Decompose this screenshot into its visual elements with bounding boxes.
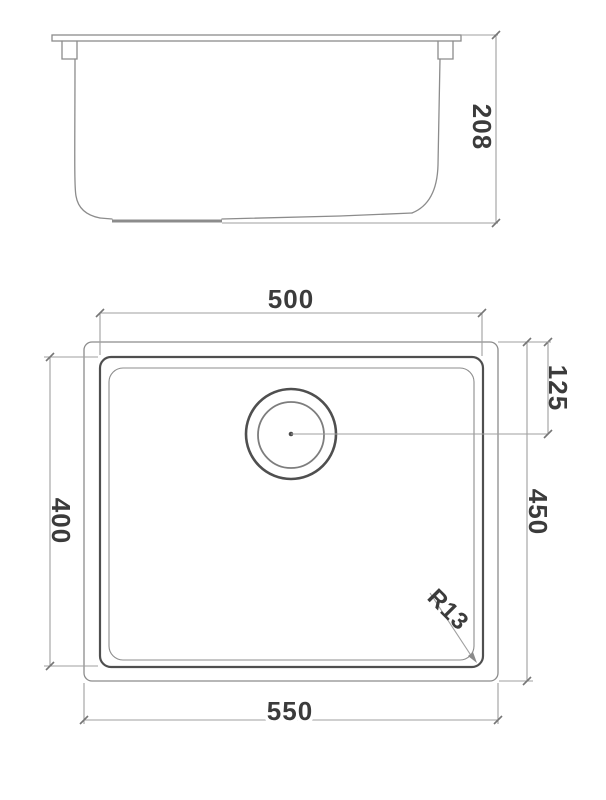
sink-side-outline — [52, 35, 461, 221]
dimension-overall-width: 550 — [80, 683, 502, 726]
bottom-slope — [222, 213, 412, 219]
outer-edge — [84, 342, 498, 681]
right-wall — [412, 59, 440, 213]
plan-view: 500 125 400 450 — [44, 284, 573, 726]
right-mounting-clip — [438, 41, 453, 59]
bottom-edge — [100, 218, 112, 219]
bowl-bottom-edge — [109, 368, 474, 660]
dimension-label-inner-depth: 400 — [46, 498, 76, 544]
corner-radius-callout: R13 — [422, 584, 477, 663]
dimension-height: 208 — [222, 31, 500, 227]
dimension-label-height: 208 — [467, 104, 497, 150]
dimension-label-corner-radius: R13 — [422, 584, 474, 636]
left-mounting-clip — [62, 41, 77, 59]
sink-technical-drawing: 208 500 125 — [0, 0, 606, 800]
dimension-label-overall-depth: 450 — [523, 489, 553, 535]
dimension-label-inner-width: 500 — [268, 284, 314, 314]
dimension-inner-depth: 400 — [44, 353, 98, 670]
sink-plan-outline — [84, 342, 498, 681]
dimension-label-overall-width: 550 — [267, 696, 313, 726]
drawing-canvas: 208 500 125 — [0, 0, 606, 800]
dimension-label-drain-offset: 125 — [543, 365, 573, 411]
rim-slab — [52, 35, 461, 41]
left-wall — [75, 59, 100, 218]
bowl-rim — [100, 357, 483, 667]
side-elevation-view: 208 — [52, 31, 500, 227]
dimension-inner-width: 500 — [96, 284, 486, 356]
